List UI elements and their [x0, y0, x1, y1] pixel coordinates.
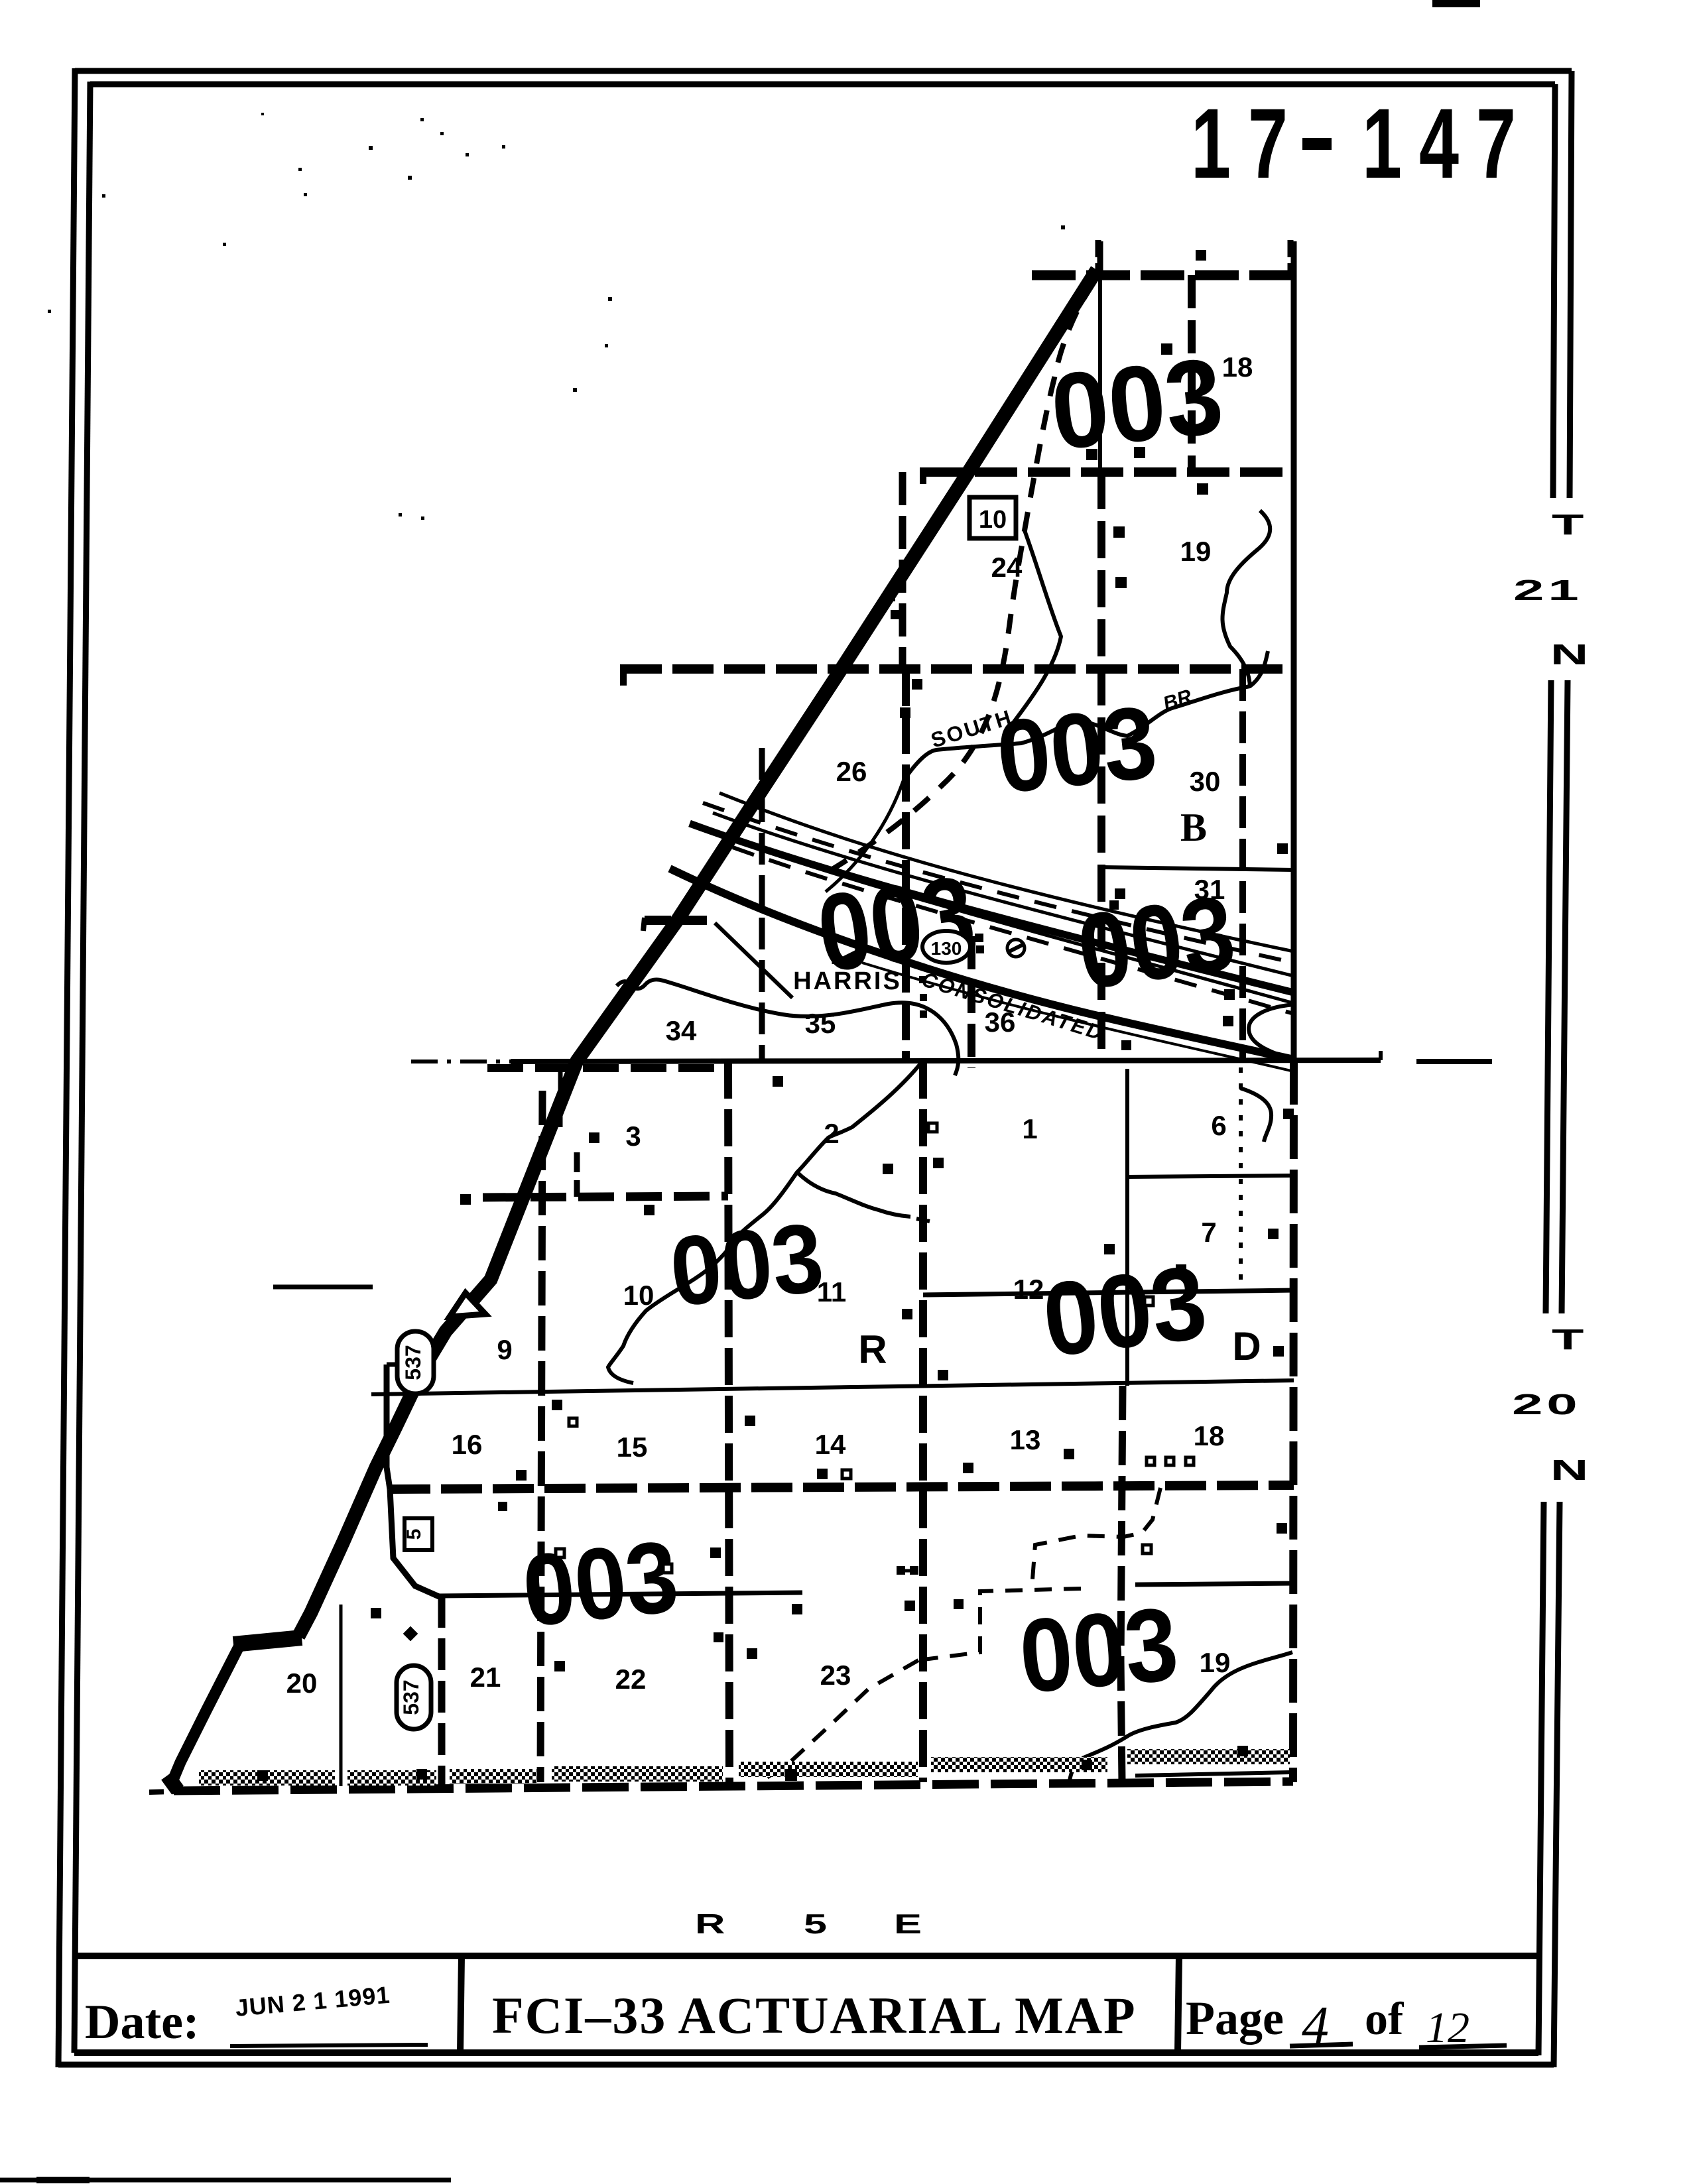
svg-text:5: 5: [403, 1529, 425, 1540]
svg-text:003: 003: [1015, 1586, 1182, 1715]
svg-text:35: 35: [805, 1008, 836, 1039]
svg-text:N: N: [1550, 638, 1588, 670]
svg-text:19: 19: [1180, 536, 1212, 567]
svg-text:003: 003: [1037, 1244, 1213, 1379]
svg-text:2: 2: [824, 1118, 839, 1149]
svg-text:003: 003: [991, 684, 1162, 815]
svg-text:B: B: [1180, 806, 1207, 849]
svg-text:003: 003: [665, 1203, 828, 1327]
svg-text:R: R: [695, 1909, 725, 1939]
svg-text:5: 5: [804, 1909, 827, 1939]
svg-text:24: 24: [991, 552, 1023, 583]
svg-text:15: 15: [617, 1431, 648, 1463]
svg-text:R: R: [858, 1327, 887, 1372]
svg-text:N: N: [1550, 1453, 1588, 1486]
svg-text:9: 9: [497, 1334, 512, 1365]
svg-text:003: 003: [810, 853, 981, 995]
svg-text:10: 10: [623, 1280, 655, 1311]
svg-text:21: 21: [1513, 574, 1582, 607]
svg-text:130: 130: [931, 938, 962, 959]
svg-text:18: 18: [1222, 351, 1253, 383]
svg-text:Page: Page: [1186, 1992, 1284, 2045]
svg-text:JUN 2 1 1991: JUN 2 1 1991: [234, 1981, 391, 2022]
svg-text:537: 537: [399, 1679, 423, 1715]
svg-text:23: 23: [820, 1660, 851, 1691]
svg-text:36: 36: [985, 1006, 1016, 1038]
svg-text:19: 19: [1200, 1647, 1231, 1678]
svg-text:T: T: [1552, 508, 1584, 540]
svg-text:17: 17: [1191, 88, 1305, 200]
svg-text:1: 1: [1022, 1113, 1037, 1144]
svg-text:D: D: [1232, 1324, 1261, 1368]
svg-text:147: 147: [1362, 88, 1533, 200]
svg-text:20: 20: [1512, 1388, 1581, 1421]
svg-text:003: 003: [518, 1519, 684, 1648]
svg-text:20: 20: [286, 1668, 318, 1699]
svg-text:7: 7: [1201, 1217, 1216, 1248]
svg-text:E: E: [894, 1909, 922, 1939]
svg-text:537: 537: [401, 1345, 425, 1380]
svg-text:22: 22: [615, 1664, 647, 1695]
svg-text:003: 003: [1071, 873, 1242, 1012]
svg-text:of: of: [1365, 1994, 1404, 2045]
svg-text:16: 16: [452, 1429, 483, 1460]
svg-text:FCI–33 ACTUARIAL MAP: FCI–33 ACTUARIAL MAP: [492, 1986, 1137, 2044]
svg-text:10: 10: [979, 506, 1007, 534]
svg-text:6: 6: [1211, 1110, 1226, 1141]
svg-text:14: 14: [815, 1429, 846, 1460]
svg-text:21: 21: [470, 1662, 501, 1693]
svg-text:13: 13: [1010, 1424, 1041, 1455]
svg-text:3: 3: [625, 1121, 641, 1152]
svg-text:26: 26: [836, 756, 867, 787]
svg-text:BR: BR: [1160, 686, 1195, 715]
svg-text:Date:: Date:: [85, 1995, 200, 2049]
svg-text:18: 18: [1194, 1420, 1225, 1451]
svg-text:30: 30: [1190, 766, 1221, 797]
svg-text:34: 34: [666, 1015, 697, 1046]
svg-text:T: T: [1552, 1323, 1584, 1355]
